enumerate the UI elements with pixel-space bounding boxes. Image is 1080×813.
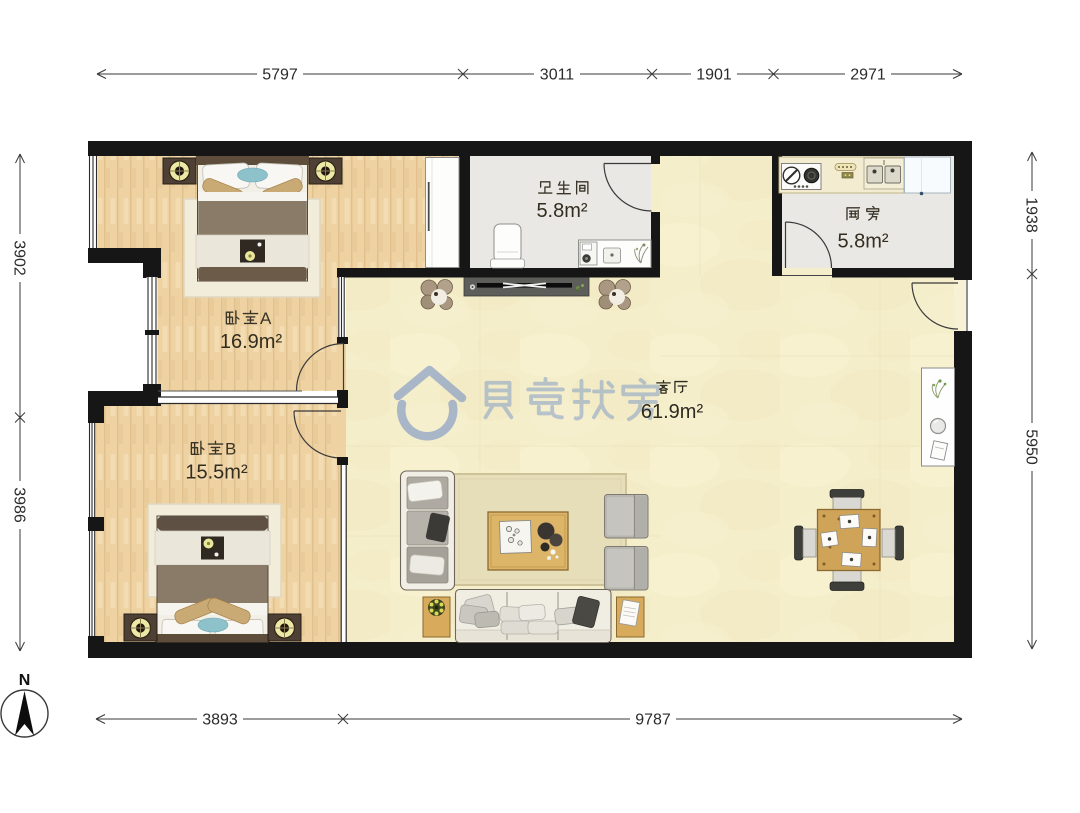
svg-text:3011: 3011 — [540, 67, 575, 84]
svg-text:N: N — [19, 672, 31, 689]
svg-text:1938: 1938 — [1023, 197, 1040, 233]
svg-text:16.9m²: 16.9m² — [220, 331, 283, 353]
svg-text:B: B — [225, 440, 236, 459]
svg-text:5.8m²: 5.8m² — [837, 231, 888, 253]
svg-text:15.5m²: 15.5m² — [185, 462, 248, 484]
svg-text:5.8m²: 5.8m² — [536, 200, 587, 222]
svg-text:9787: 9787 — [635, 712, 671, 729]
svg-text:2971: 2971 — [850, 67, 886, 84]
svg-text:A: A — [260, 309, 272, 328]
svg-text:3893: 3893 — [202, 712, 238, 729]
svg-text:61.9m²: 61.9m² — [641, 401, 704, 423]
svg-text:1901: 1901 — [696, 67, 732, 84]
svg-text:3986: 3986 — [11, 487, 28, 523]
svg-text:3902: 3902 — [11, 240, 28, 276]
svg-text:5950: 5950 — [1023, 429, 1040, 465]
svg-text:5797: 5797 — [262, 67, 298, 84]
